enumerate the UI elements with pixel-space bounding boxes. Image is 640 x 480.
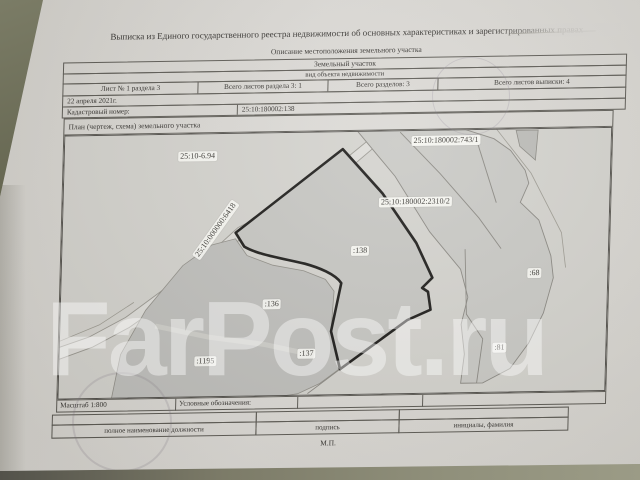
document-paper: Выписка из Единого государственного реес… xyxy=(0,0,640,480)
cadastral-map: 25:10-6.94 25:10:000000:6418 25:10:18000… xyxy=(57,127,612,400)
parcel-label-2310-2: 25:10:180002:2310/2 xyxy=(379,196,452,207)
signature-caption: подпись xyxy=(255,419,399,435)
legend-empty-cell-1 xyxy=(297,395,422,409)
parcel-small-quad xyxy=(515,130,538,160)
quartal-label: 25:10-6.94 xyxy=(178,151,217,162)
seal-placeholder: М.П. xyxy=(228,437,428,449)
egrn-extract-document: Выписка из Единого государственного реес… xyxy=(51,22,632,467)
parcel-label-81: :81 xyxy=(492,343,506,353)
legend-empty-cell-2 xyxy=(422,392,605,407)
parcel-label-138: :138 xyxy=(351,246,369,256)
title-scan-fade xyxy=(492,23,622,38)
map-scale: Масштаб 1:800 xyxy=(57,399,175,413)
name-caption: инициалы, фамилия xyxy=(398,417,568,434)
parcel-label-136: :136 xyxy=(263,299,281,309)
cadastral-map-drawing xyxy=(57,127,612,400)
parcel-label-1195: :1195 xyxy=(194,356,216,366)
position-caption: полное наименование должности xyxy=(51,421,256,438)
parcel-label-68: :68 xyxy=(527,268,541,278)
parcel-label-137: :137 xyxy=(297,349,315,359)
plan-box: План (чертеж, схема) земельного участка xyxy=(56,110,614,413)
parcel-label-743-1: 25:10:180002:743/1 xyxy=(411,135,480,146)
legend-label: Условные обозначения: xyxy=(175,397,297,411)
paper-edge-shadow xyxy=(0,185,26,475)
